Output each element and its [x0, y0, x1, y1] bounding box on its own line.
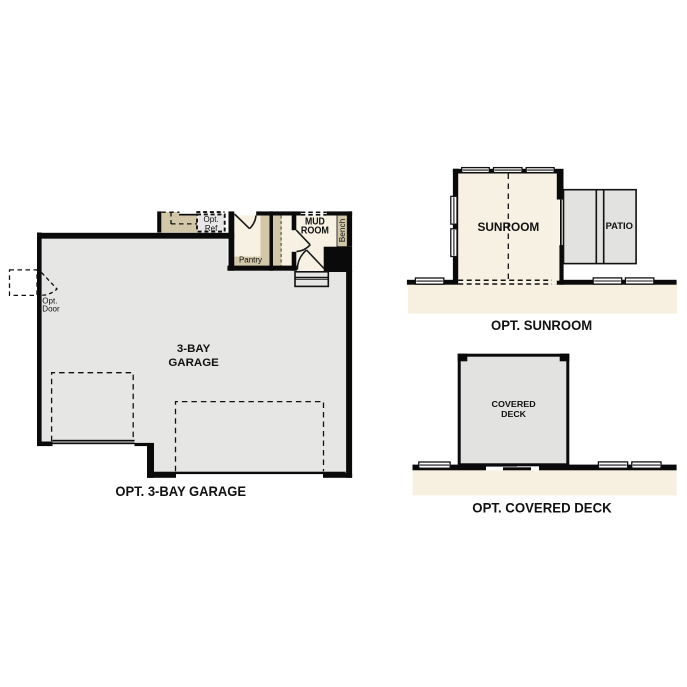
svg-text:3-BAY: 3-BAY	[177, 343, 211, 355]
svg-text:OPT. 3-BAY GARAGE: OPT. 3-BAY GARAGE	[115, 483, 246, 499]
svg-text:GARAGE: GARAGE	[168, 357, 219, 369]
svg-text:PATIO: PATIO	[606, 221, 633, 231]
svg-text:COVERED: COVERED	[492, 399, 536, 409]
svg-text:OPT. SUNROOM: OPT. SUNROOM	[491, 317, 592, 333]
svg-text:Bench: Bench	[337, 218, 347, 242]
svg-text:ROOM: ROOM	[301, 225, 329, 236]
svg-text:Opt.: Opt.	[204, 215, 219, 224]
svg-text:Pantry: Pantry	[239, 255, 262, 264]
svg-text:Ref: Ref	[205, 224, 218, 233]
svg-text:DECK: DECK	[501, 409, 527, 419]
svg-text:SUNROOM: SUNROOM	[478, 220, 540, 234]
svg-text:Door: Door	[42, 304, 60, 313]
svg-text:OPT. COVERED DECK: OPT. COVERED DECK	[472, 500, 611, 516]
